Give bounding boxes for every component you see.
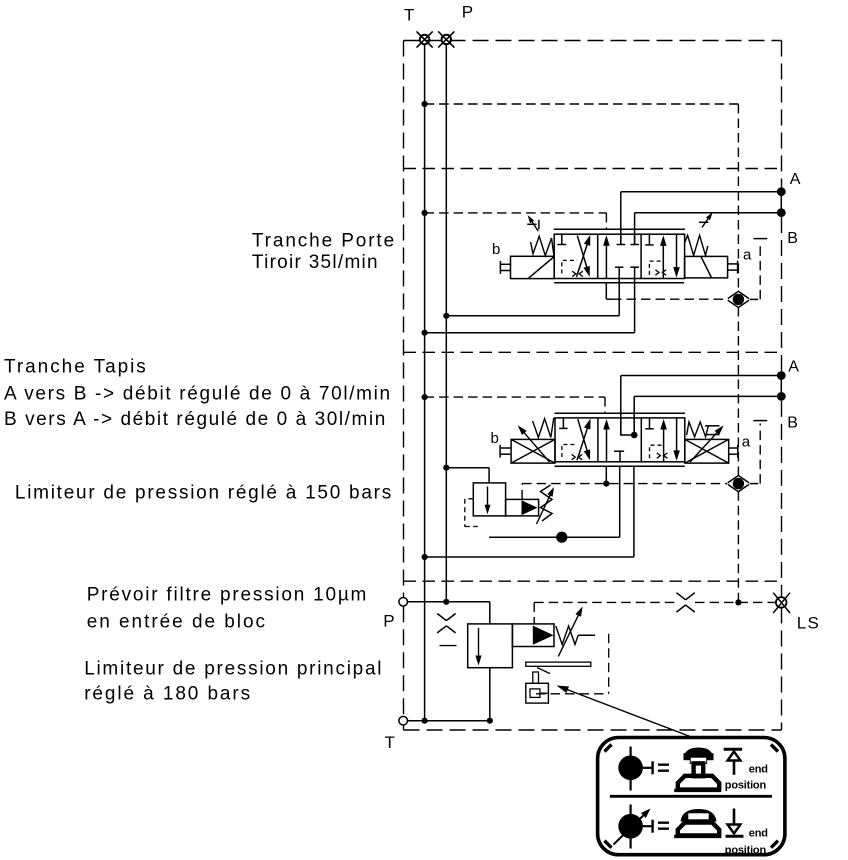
svg-text:Limiteur de pression principal: Limiteur de pression principal (84, 659, 383, 680)
svg-text:B: B (787, 230, 798, 247)
svg-text:T: T (404, 5, 414, 24)
svg-text:Tiroir 35l/min: Tiroir 35l/min (252, 252, 379, 273)
svg-text:B vers A -> débit régulé de 0: B vers A -> débit régulé de 0 à 30l/min (4, 409, 387, 430)
svg-text:B: B (787, 415, 798, 432)
svg-text:en entrée de bloc: en entrée de bloc (87, 611, 267, 632)
svg-text:P: P (462, 3, 473, 22)
svg-text:b: b (492, 241, 500, 258)
svg-text:Tranche Porte: Tranche Porte (252, 230, 396, 251)
svg-text:LS: LS (797, 614, 820, 633)
svg-text:T: T (385, 733, 395, 752)
svg-text:=: = (657, 756, 670, 781)
svg-text:A: A (788, 359, 799, 376)
svg-text:réglé à 180 bars: réglé à 180 bars (84, 684, 252, 705)
svg-text:position: position (725, 845, 767, 857)
svg-text:Prévoir filtre pression 10µm: Prévoir filtre pression 10µm (87, 585, 368, 606)
svg-text:a: a (742, 434, 751, 451)
svg-text:A: A (790, 171, 801, 188)
svg-text:end: end (749, 764, 768, 776)
svg-text:end: end (749, 828, 768, 840)
svg-text:=: = (657, 814, 670, 839)
svg-text:Tranche Tapis: Tranche Tapis (4, 357, 148, 378)
svg-text:A vers B -> débit régulé de 0: A vers B -> débit régulé de 0 à 70l/min (4, 384, 392, 405)
svg-text:P: P (383, 612, 394, 631)
svg-text:position: position (725, 779, 767, 791)
svg-text:a: a (743, 246, 752, 263)
svg-text:b: b (491, 430, 499, 447)
svg-text:Limiteur de pression réglé à 1: Limiteur de pression réglé à 150 bars (15, 483, 393, 504)
